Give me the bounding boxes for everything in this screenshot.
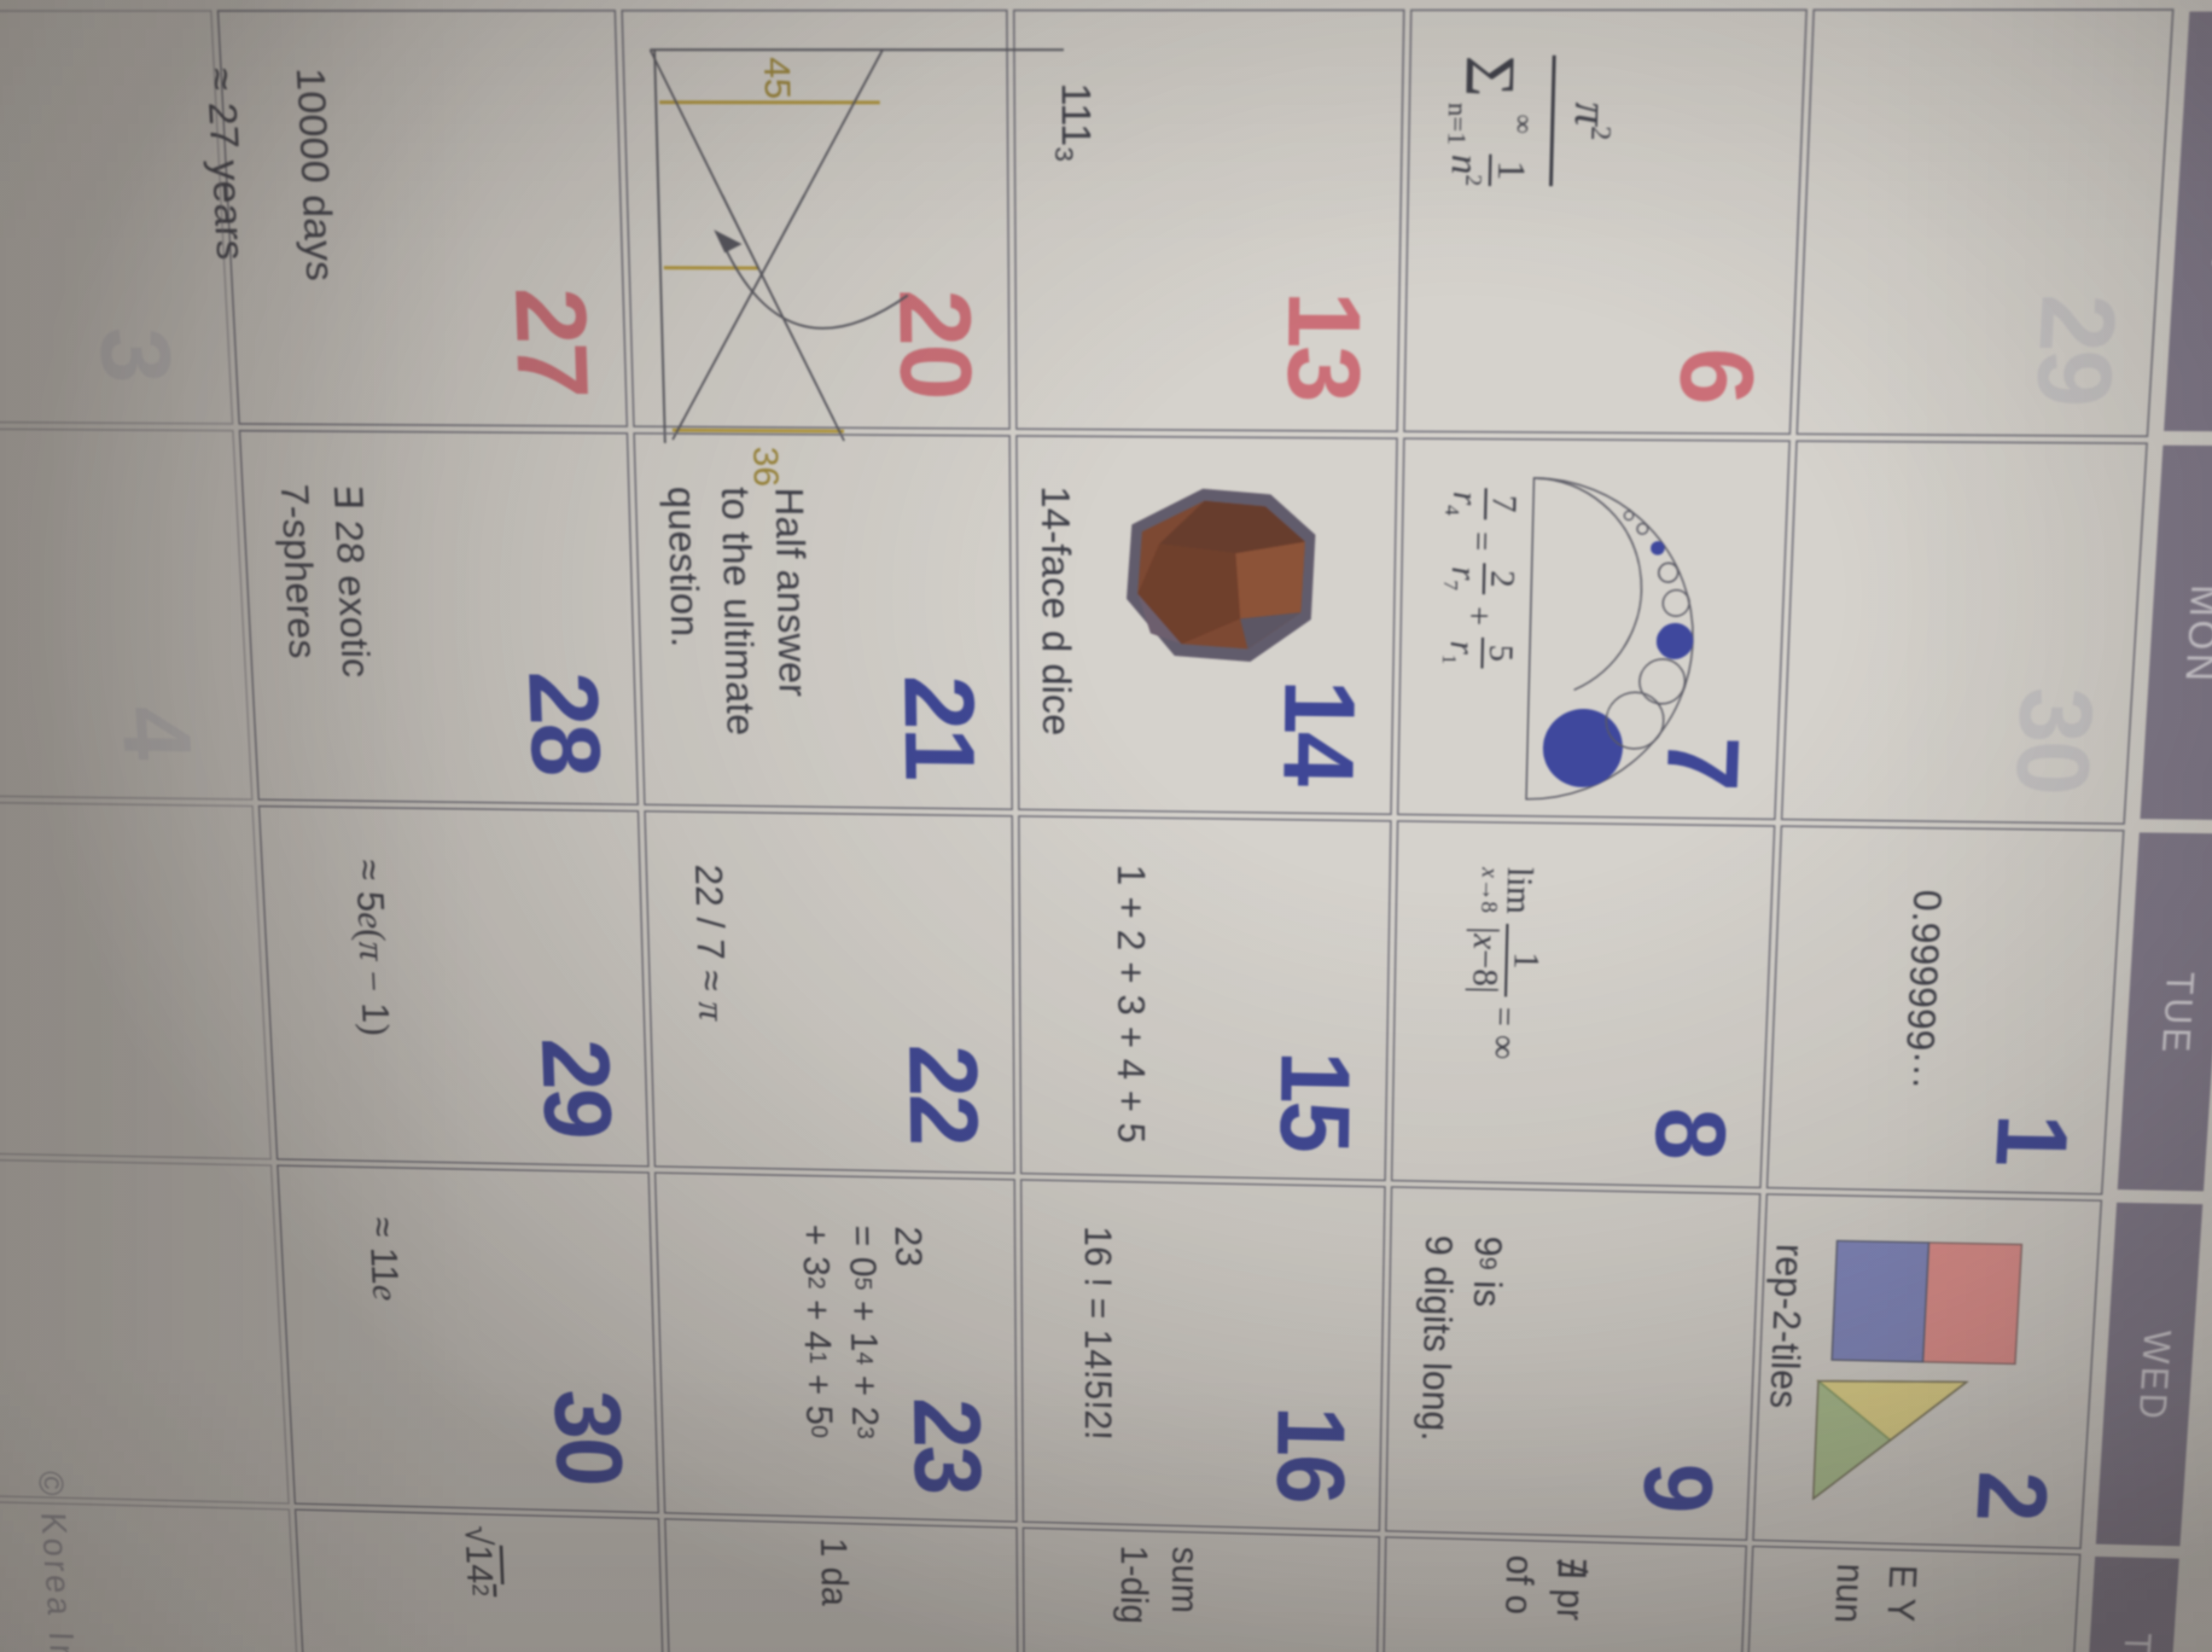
svg-text:45: 45 (756, 57, 799, 100)
